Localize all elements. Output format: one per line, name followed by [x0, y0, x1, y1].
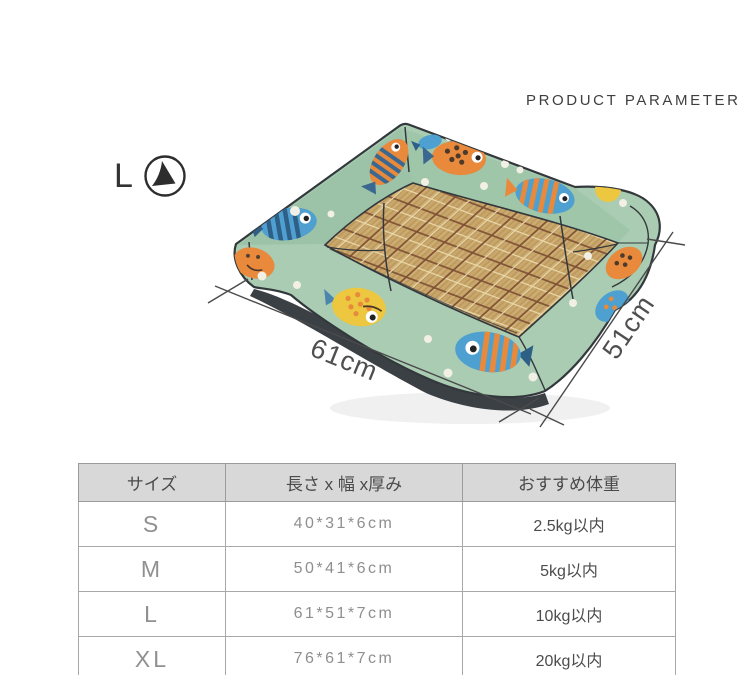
weight-cell: 5kg以内 [463, 547, 676, 592]
size-table: サイズ 長さ x 幅 x厚み おすすめ体重 S 40*31*6cm 2.5kg以… [78, 463, 676, 675]
weight-cell: 2.5kg以内 [463, 502, 676, 547]
weight-cell: 20kg以内 [463, 637, 676, 675]
dimensions-cell: 40*31*6cm [226, 502, 463, 547]
header-dimensions: 長さ x 幅 x厚み [226, 464, 463, 502]
size-cell: L [79, 592, 226, 637]
dimensions-cell: 61*51*7cm [226, 592, 463, 637]
dimensions-cell: 50*41*6cm [226, 547, 463, 592]
header-size: サイズ [79, 464, 226, 502]
table-row: L 61*51*7cm 10kg以内 [79, 592, 676, 637]
table-row: XL 76*61*7cm 20kg以内 [79, 637, 676, 675]
header-weight: おすすめ体重 [463, 464, 676, 502]
size-cell: S [79, 502, 226, 547]
table-row: M 50*41*6cm 5kg以内 [79, 547, 676, 592]
size-cell: M [79, 547, 226, 592]
size-cell: XL [79, 637, 226, 675]
table-row: S 40*31*6cm 2.5kg以内 [79, 502, 676, 547]
weight-cell: 10kg以内 [463, 592, 676, 637]
dimensions-cell: 76*61*7cm [226, 637, 463, 675]
table-header-row: サイズ 長さ x 幅 x厚み おすすめ体重 [79, 464, 676, 502]
product-spec-page: PRODUCT PARAMETER L [0, 0, 750, 675]
